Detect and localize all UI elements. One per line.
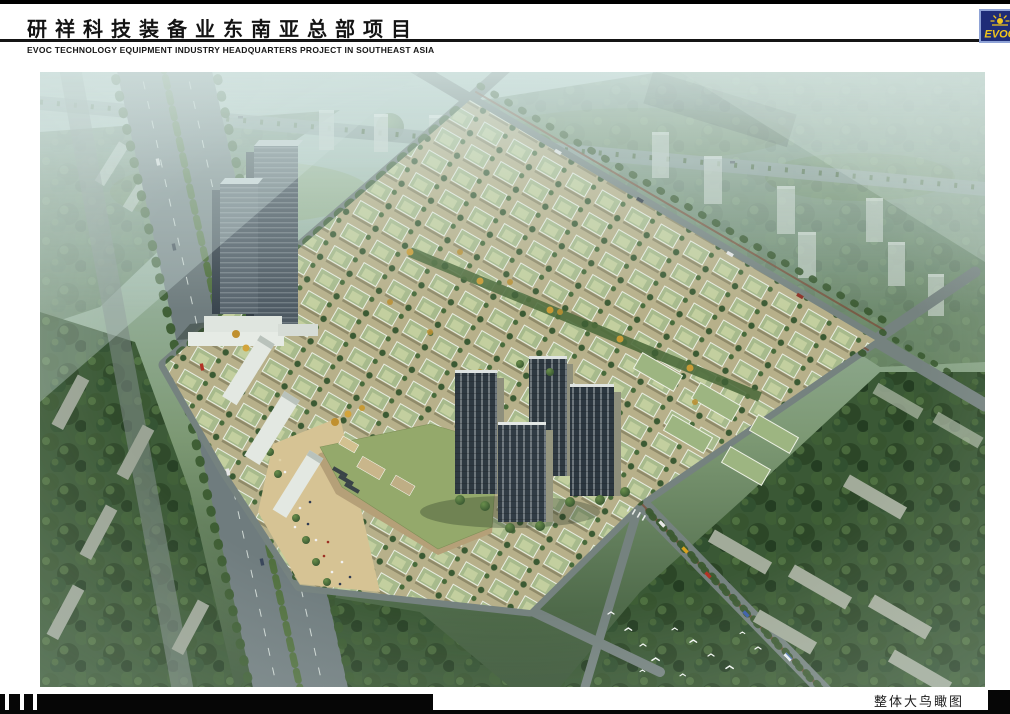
page-subtitle: EVOC TECHNOLOGY EQUIPMENT INDUSTRY HEADQ…	[27, 45, 434, 55]
title-rule	[0, 39, 1010, 42]
drawing-caption: 整体大鸟瞰图	[874, 694, 964, 710]
footer-corner-square	[988, 690, 1010, 714]
page-title: 研祥科技装备业东南亚总部项目	[27, 13, 419, 42]
evoc-logo: EVOC	[979, 9, 1010, 43]
caption-panel: 整体大鸟瞰图	[433, 694, 988, 710]
aerial-rendering	[40, 72, 985, 687]
haze-overlay	[40, 72, 985, 687]
footer-bottom-line	[0, 710, 1010, 714]
top-black-bar	[0, 0, 1010, 4]
logo-text: EVOC	[984, 29, 1010, 41]
presentation-board: 研祥科技装备业东南亚总部项目 EVOC TECHNOLOGY EQUIPMENT…	[0, 0, 1010, 714]
